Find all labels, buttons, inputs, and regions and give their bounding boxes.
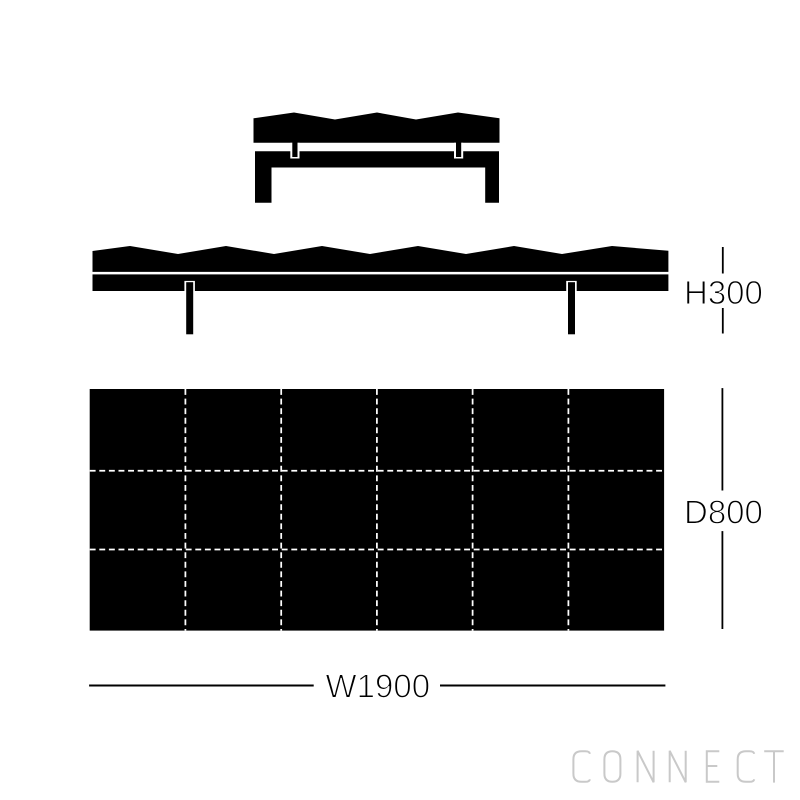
svg-text:H300: H300 <box>684 274 763 311</box>
svg-text:D800: D800 <box>684 494 763 531</box>
svg-text:W1900: W1900 <box>326 668 431 705</box>
